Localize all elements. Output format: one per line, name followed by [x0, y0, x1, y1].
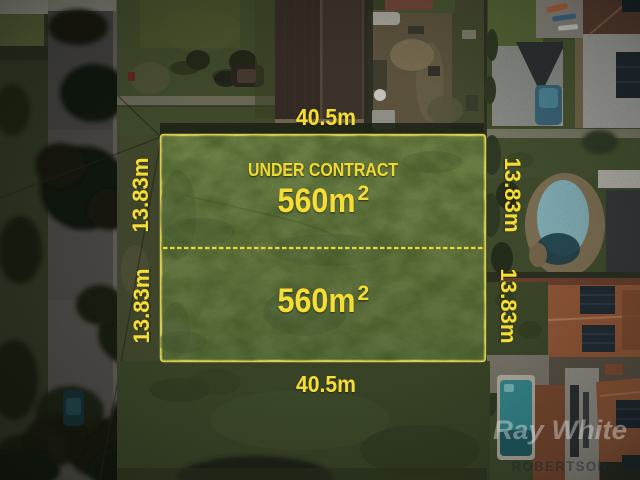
svg-text:UNDER CONTRACT: UNDER CONTRACT — [248, 159, 399, 180]
svg-text:13.83m: 13.83m — [129, 269, 154, 344]
svg-text:40.5m: 40.5m — [296, 371, 356, 397]
svg-text:40.5m: 40.5m — [296, 104, 356, 130]
svg-text:Ray White: Ray White — [493, 415, 627, 445]
svg-text:560m: 560m — [278, 182, 356, 220]
svg-text:560m: 560m — [278, 282, 356, 320]
svg-text:13.83m: 13.83m — [496, 269, 521, 344]
svg-text:13.83m: 13.83m — [500, 158, 525, 233]
svg-text:ROBERTSON: ROBERTSON — [512, 458, 609, 474]
svg-text:2: 2 — [358, 282, 370, 305]
svg-text:2: 2 — [358, 182, 370, 205]
svg-text:13.83m: 13.83m — [128, 158, 153, 233]
